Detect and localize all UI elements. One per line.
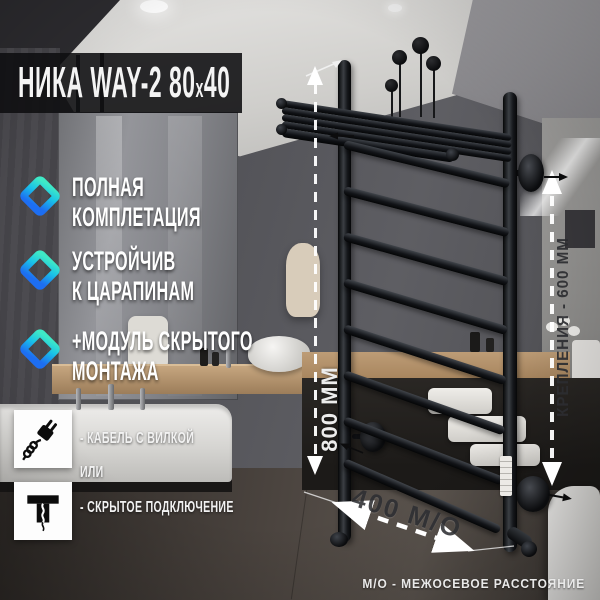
product-title-banner: НИКА WAY-2 80х40 xyxy=(0,53,242,113)
or-separator: ИЛИ xyxy=(80,464,104,482)
power-plug-icon xyxy=(20,416,66,462)
mount-pointer-arrow-icon xyxy=(544,168,570,186)
diamond-gradient-icon xyxy=(16,325,64,373)
diamond-gradient-icon xyxy=(16,172,64,220)
wall-mount-disc xyxy=(518,154,544,192)
shelf-end-cap xyxy=(276,98,287,109)
diamond-gradient-icon xyxy=(16,246,64,294)
feature-label: УСТРОЙЧИВ К ЦАРАПИНАМ xyxy=(72,246,194,306)
product-promo-image: 800 ММ КРЕПЛЕНИЯ - 600 ММ 400 М/О xyxy=(0,0,600,600)
hidden-option-label: - СКРЫТОЕ ПОДКЛЮЧЕНИЕ xyxy=(80,499,234,517)
hidden-wiring-icon xyxy=(20,488,66,534)
product-title-size: 40 xyxy=(204,58,230,107)
product-title-main: НИКА WAY-2 80 xyxy=(18,58,195,107)
mount-pointer-arrow-icon xyxy=(326,128,356,144)
plug-option-label: - КАБЕЛЬ С ВИЛКОЙ xyxy=(80,430,194,448)
shelf-end-cap xyxy=(276,124,287,135)
plug-icon-tile xyxy=(14,410,72,468)
shelf-end-cap xyxy=(446,148,459,161)
hidden-wiring-icon-tile xyxy=(14,482,72,540)
mo-footnote: М/О - МЕЖОСЕВОЕ РАССТОЯНИЕ xyxy=(362,576,585,591)
arrow-down-icon xyxy=(542,462,562,486)
feature-label: ПОЛНАЯ КОМПЛЕТАЦИЯ xyxy=(72,172,201,232)
arrow-up-icon xyxy=(307,66,323,85)
product-title: НИКА WAY-2 80х40 xyxy=(18,59,230,112)
product-title-x: х xyxy=(195,72,203,103)
mount-dimension-label: КРЕПЛЕНИЯ - 600 ММ xyxy=(555,234,573,420)
feature-label: +МОДУЛЬ СКРЫТОГО МОНТАЖА xyxy=(72,326,253,386)
mount-dimension-line xyxy=(550,196,554,460)
